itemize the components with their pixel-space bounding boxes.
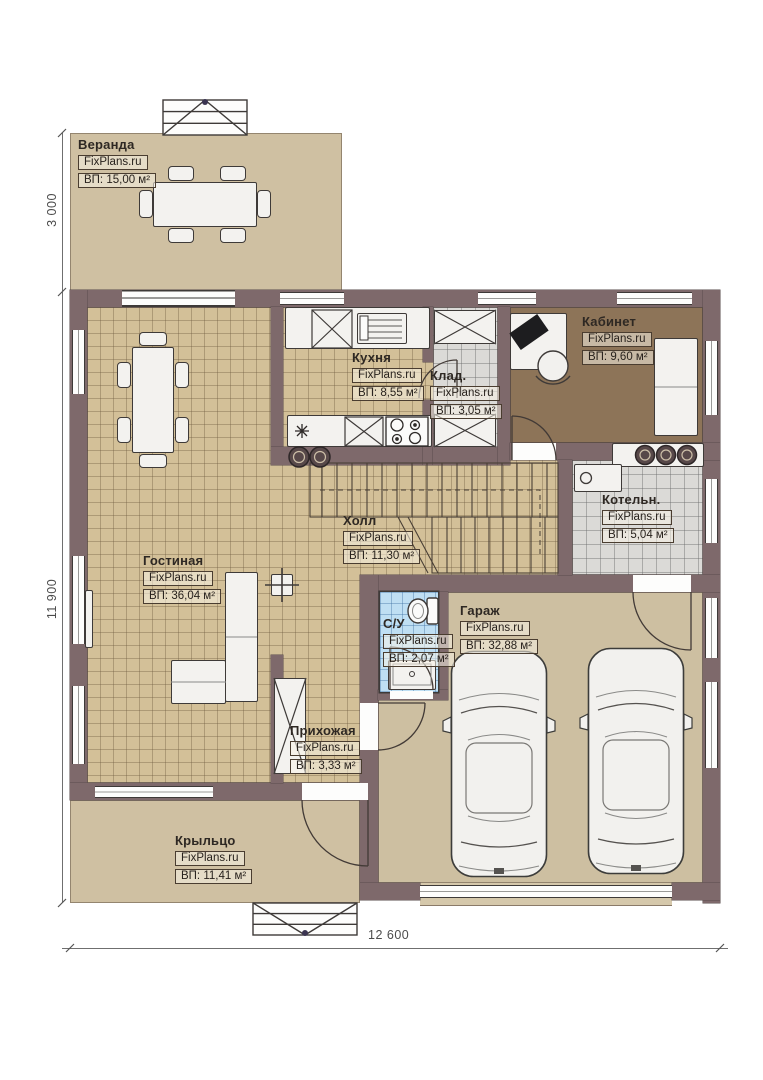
label-entry: Прихожая FixPlans.ru ВП: 3,33 м² (290, 723, 362, 774)
kitchen-oven (357, 313, 407, 344)
storage-shelf-top (434, 310, 496, 344)
brand-watermark: FixPlans.ru (602, 510, 672, 525)
label-living: Гостиная FixPlans.ru ВП: 36,04 м² (143, 553, 221, 604)
office-sofa (654, 338, 698, 436)
bar-counter-office (612, 443, 704, 467)
wall-boiler-left (558, 460, 572, 575)
boiler-unit (574, 464, 622, 492)
room-area-hall: ВП: 11,30 м² (343, 549, 420, 564)
label-storage: Клад. FixPlans.ru ВП: 3,05 м² (430, 368, 502, 419)
veranda-chair (257, 190, 271, 218)
veranda-chair (220, 228, 246, 243)
window-living-left-2 (72, 556, 85, 644)
office-desk (510, 313, 567, 370)
brand-watermark: FixPlans.ru (352, 368, 422, 383)
room-area-storage: ВП: 3,05 м² (430, 404, 502, 419)
living-chair (139, 454, 167, 468)
brand-watermark: FixPlans.ru (582, 332, 652, 347)
room-name-hall: Холл (343, 513, 376, 528)
veranda-chair (168, 166, 194, 181)
living-sofa (225, 572, 258, 702)
exterior-steps-top-icon (163, 99, 247, 135)
brand-watermark: FixPlans.ru (383, 634, 453, 649)
dim-house-depth: 11 900 (45, 571, 59, 627)
dimension-line-left (62, 133, 63, 903)
brand-watermark: FixPlans.ru (78, 155, 148, 170)
brand-watermark: FixPlans.ru (430, 386, 500, 401)
room-area-office: ВП: 9,60 м² (582, 350, 654, 365)
garage-door (420, 885, 672, 898)
dimension-line-bottom (62, 948, 728, 949)
label-porch: Крыльцо FixPlans.ru ВП: 11,41 м² (175, 833, 252, 884)
dim-house-width: 12 600 (368, 928, 409, 942)
window-garage-right-2 (705, 682, 718, 768)
room-area-kitchen: ВП: 8,55 м² (352, 386, 424, 401)
wall-garage-bottom-b (672, 883, 720, 900)
room-area-living: ВП: 36,04 м² (143, 589, 221, 604)
living-chair (117, 417, 131, 443)
living-chair (139, 332, 167, 346)
floor-plan: Веранда FixPlans.ru ВП: 15,00 м² Кухня F… (0, 0, 763, 1080)
label-garage: Гараж FixPlans.ru ВП: 32,88 м² (460, 603, 538, 654)
veranda-table (153, 182, 257, 227)
label-office: Кабинет FixPlans.ru ВП: 9,60 м² (582, 314, 654, 365)
veranda-chair (168, 228, 194, 243)
opening-veranda-living (122, 290, 235, 307)
room-area-boiler: ВП: 5,04 м² (602, 528, 674, 543)
veranda-chair (139, 190, 153, 218)
exterior-steps-bottom-icon (253, 903, 357, 936)
living-side-table (271, 574, 293, 596)
garage-side-door-gap (360, 703, 378, 750)
room-name-office: Кабинет (582, 314, 636, 329)
front-door-gap (302, 783, 368, 800)
brand-watermark: FixPlans.ru (290, 741, 360, 756)
brand-watermark: FixPlans.ru (460, 621, 530, 636)
room-name-storage: Клад. (430, 368, 466, 383)
office-door-gap (512, 443, 556, 460)
wall-kitchen-left (271, 307, 283, 447)
room-area-veranda: ВП: 15,00 м² (78, 173, 156, 188)
room-area-porch: ВП: 11,41 м² (175, 869, 252, 884)
wall-garage-bottom-a (360, 883, 420, 900)
living-chair (175, 417, 189, 443)
brand-watermark: FixPlans.ru (343, 531, 413, 546)
window-boiler-right (705, 479, 718, 543)
living-chair (117, 362, 131, 388)
window-living-left-3 (72, 686, 85, 764)
room-name-entry: Прихожая (290, 723, 356, 738)
room-name-veranda: Веранда (78, 137, 135, 152)
label-boiler: Котельн. FixPlans.ru ВП: 5,04 м² (602, 492, 674, 543)
room-name-boiler: Котельн. (602, 492, 660, 507)
garage-boiler-door-gap (633, 575, 691, 592)
label-veranda: Веранда FixPlans.ru ВП: 15,00 м² (78, 137, 156, 188)
living-sofa-chaise (171, 660, 226, 704)
window-office-right (705, 341, 718, 415)
window-office-top (617, 292, 692, 305)
room-name-kitchen: Кухня (352, 350, 391, 365)
room-area-bathroom: ВП: 2,07 м² (383, 652, 455, 667)
window-kitchen (280, 292, 344, 305)
window-top-mid (478, 292, 536, 305)
living-table (132, 347, 174, 453)
room-name-garage: Гараж (460, 603, 500, 618)
label-hall: Холл FixPlans.ru ВП: 11,30 м² (343, 513, 420, 564)
brand-watermark: FixPlans.ru (143, 571, 213, 586)
room-area-entry: ВП: 3,33 м² (290, 759, 362, 774)
window-living-left-1 (72, 330, 85, 394)
label-kitchen: Кухня FixPlans.ru ВП: 8,55 м² (352, 350, 424, 401)
room-name-bathroom: С/У (383, 616, 405, 631)
wall-storage-bottom (433, 447, 498, 465)
label-bathroom: С/У FixPlans.ru ВП: 2,07 м² (383, 616, 455, 667)
brand-watermark: FixPlans.ru (175, 851, 245, 866)
window-garage-right-1 (705, 598, 718, 658)
bathroom-door-gap (390, 691, 433, 699)
room-name-porch: Крыльцо (175, 833, 236, 848)
window-living-bottom (95, 786, 213, 798)
room-area-garage: ВП: 32,88 м² (460, 639, 538, 654)
radiator (85, 590, 93, 648)
veranda-chair (220, 166, 246, 181)
dim-veranda-depth: 3 000 (45, 188, 59, 232)
living-chair (175, 362, 189, 388)
room-name-living: Гостиная (143, 553, 203, 568)
kitchen-counter-bottom (287, 415, 432, 447)
